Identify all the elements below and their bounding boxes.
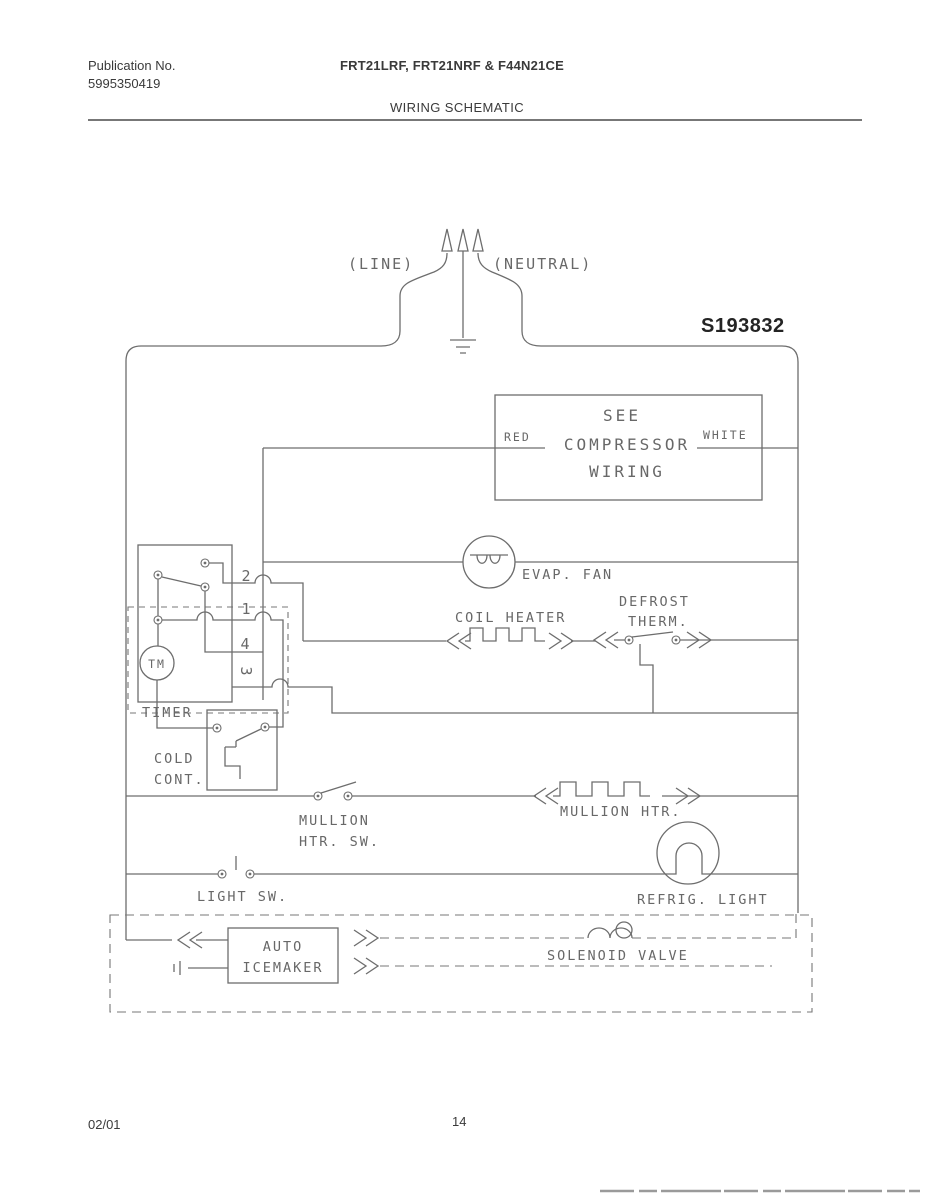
terminal-icon	[261, 723, 269, 731]
icemaker-label-line1: AUTO	[263, 939, 304, 955]
scanned-manual-page: Publication No. 5995350419 FRT21LRF, FRT…	[0, 0, 927, 1200]
timer-terminal-4: 4	[240, 635, 251, 653]
icemaker-section	[110, 915, 812, 1012]
solenoid-coil-icon	[616, 922, 632, 938]
refrigerator-light	[657, 822, 798, 884]
terminal-icon	[213, 724, 221, 732]
terminal-icon	[154, 571, 162, 579]
mullion-heater-label: MULLION HTR.	[560, 804, 682, 820]
mullion-heater	[534, 782, 798, 804]
contact-4-wire	[205, 591, 263, 652]
contact-2-wire	[209, 563, 303, 641]
red-wire-label: RED	[504, 430, 531, 444]
timer-terminal-2: 2	[241, 567, 252, 585]
mullion-switch-label-line1: MULLION	[299, 813, 370, 829]
refrig-light-label: REFRIG. LIGHT	[637, 892, 769, 908]
terminal-icon	[625, 636, 633, 644]
timer-box	[138, 545, 232, 702]
icemaker-label-line2: ICEMAKER	[242, 960, 323, 976]
evap-fan-label: EVAP. FAN	[522, 567, 613, 583]
connector-right-icon	[354, 930, 378, 946]
defrost-therm-label-line1: DEFROST	[619, 594, 690, 610]
compressor-note-line3: WIRING	[589, 462, 665, 481]
compressor-section	[263, 395, 798, 500]
timer-motor-label: TM	[148, 657, 166, 671]
power-plug-prongs	[442, 229, 483, 353]
solenoid-valve	[588, 914, 796, 938]
ground-symbol	[450, 251, 476, 353]
cold-control-box	[207, 710, 277, 790]
heater-element-symbol	[553, 782, 650, 796]
connector-right-icon	[549, 633, 573, 649]
icemaker-dashed-enclosure	[110, 915, 812, 1012]
connector-right-icon	[354, 958, 378, 974]
mullion-switch-label-line2: HTR. SW.	[299, 834, 380, 850]
cold-control-label-line2: CONT.	[154, 772, 205, 788]
defrost-therm-label-line2: THERM.	[628, 614, 689, 630]
terminal-icon	[672, 636, 680, 644]
solenoid-valve-label: SOLENOID VALVE	[547, 948, 689, 964]
compressor-note-line2: COMPRESSOR	[564, 435, 690, 454]
terminal-icon	[218, 870, 226, 878]
light-switch-label: LIGHT SW.	[197, 889, 288, 905]
timer-section	[128, 545, 798, 728]
diagram-number: S193832	[701, 315, 785, 337]
neutral-label: (NEUTRAL)	[493, 255, 592, 273]
cold-control-section	[207, 710, 277, 790]
line-label: (LINE)	[348, 255, 414, 273]
defrost-thermostat	[594, 632, 798, 713]
white-wire-label: WHITE	[703, 428, 748, 442]
terminal-icon	[201, 559, 209, 567]
cold-control-label-line1: COLD	[154, 751, 195, 767]
timer-terminal-1: 1	[241, 600, 252, 618]
motor-coil-symbol	[470, 555, 508, 563]
light-bulb-icon	[657, 822, 719, 884]
defrost-drop-wire	[640, 644, 653, 713]
footer-date: 02/01	[88, 1117, 121, 1132]
timer-label: TIMER	[142, 705, 193, 721]
footer-page-number: 14	[452, 1114, 466, 1129]
wiring-schematic-diagram: (LINE) (NEUTRAL) S193832 RED WHITE SEE C…	[0, 0, 927, 1200]
light-switch	[126, 856, 659, 874]
terminal-icon	[344, 792, 352, 800]
contact-3-wire	[232, 679, 798, 713]
terminal-icon	[154, 616, 162, 624]
coil-heater	[303, 628, 596, 649]
coil-heater-label: COIL HEATER	[455, 610, 566, 626]
terminal-icon	[314, 792, 322, 800]
schematic-border-left	[126, 253, 447, 940]
icemaker-ground-symbol	[174, 961, 228, 975]
timer-terminal-3: 3	[237, 666, 255, 677]
heater-element-symbol	[465, 628, 545, 641]
terminal-icon	[201, 583, 209, 591]
compressor-note-line1: SEE	[603, 406, 641, 425]
terminal-icon	[246, 870, 254, 878]
